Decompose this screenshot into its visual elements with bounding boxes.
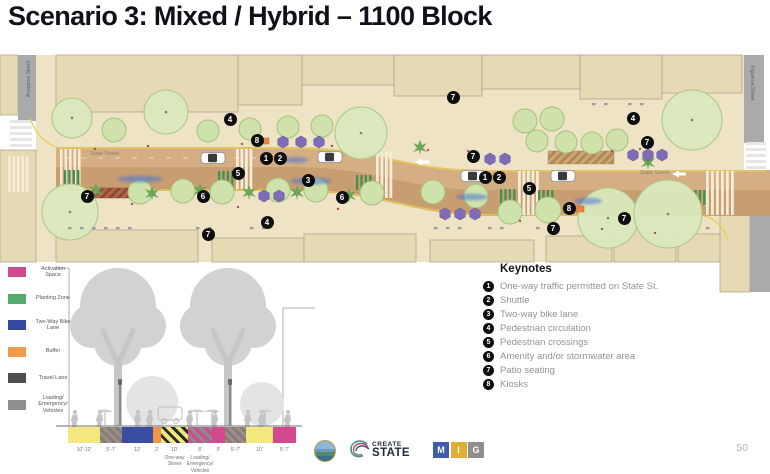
crosswalk-anapamu	[10, 120, 32, 147]
keynote-marker-2: 2	[493, 171, 506, 184]
keynote-label: Shuttle	[500, 295, 530, 306]
legend-item: Two-Way Bike Lane	[8, 312, 94, 339]
keynote-item-6: 6Amenity and/or stormwater area	[483, 349, 767, 363]
keynote-number: 2	[483, 295, 494, 306]
keynote-label: Two-way bike lane	[500, 309, 578, 320]
segment-dimension: 8'	[188, 447, 212, 453]
section-segment-0: 10'-12'	[68, 427, 100, 474]
shuttle-blur	[574, 198, 602, 205]
car-icon	[551, 171, 575, 182]
site-plan-illustration	[0, 0, 770, 474]
legend-item: Planting Zone	[8, 286, 94, 313]
segment-swatch	[273, 427, 296, 443]
section-segment-5: 8'Loading/ Emergency/ Vehicles	[188, 427, 212, 474]
keynote-number: 8	[483, 379, 494, 390]
legend-label: Buffer	[33, 348, 73, 355]
keynote-marker-4: 4	[627, 112, 640, 125]
section-segment-9: 5'-7'	[273, 427, 296, 474]
segment-sublabel: Loading/ Emergency/ Vehicles	[185, 455, 215, 474]
segment-swatch	[100, 427, 122, 443]
keynote-label: Pedestrian crossings	[500, 337, 588, 348]
cross-section-drawing	[55, 268, 315, 431]
slide: Scenario 3: Mixed / Hybrid – 1100 Block	[0, 0, 770, 474]
keynote-marker-4: 4	[261, 216, 274, 229]
segment-dimension: 10'	[246, 447, 273, 453]
loading-zone-hatch	[548, 151, 614, 164]
keynote-marker-7: 7	[202, 228, 215, 241]
legend-swatch	[8, 267, 26, 277]
segment-swatch	[122, 427, 153, 443]
keynote-marker-4: 4	[224, 113, 237, 126]
keynote-number: 1	[483, 281, 494, 292]
legend-label: Planting Zone	[33, 295, 73, 302]
crosswalk-figueroa	[746, 142, 766, 169]
segment-dimension: 5'-7'	[100, 447, 122, 453]
segment-swatch	[188, 427, 212, 443]
keynote-marker-3: 3	[302, 174, 315, 187]
mig-letter-G: G	[468, 442, 484, 458]
keynote-marker-7: 7	[618, 212, 631, 225]
create-state-s-icon	[348, 439, 370, 461]
segment-swatch	[161, 427, 188, 443]
shuttle-blur	[284, 157, 308, 163]
legend-swatch	[8, 294, 26, 304]
legend-label: Loading/ Emergency/ Vehicles	[33, 395, 73, 415]
keynote-marker-5: 5	[232, 167, 245, 180]
keynote-number: 6	[483, 351, 494, 362]
city-seal-logo	[314, 440, 336, 462]
legend-swatch	[8, 347, 26, 357]
keynote-marker-7: 7	[81, 190, 94, 203]
keynote-label: Pedestrian circulation	[500, 323, 591, 334]
segment-swatch	[225, 427, 246, 443]
keynote-label: Patio seating	[500, 365, 555, 376]
legend-label: Travel Lane	[33, 375, 73, 382]
segment-dimension: 5'	[212, 447, 225, 453]
segment-swatch	[212, 427, 225, 443]
keynote-marker-6: 6	[197, 190, 210, 203]
keynote-marker-8: 8	[563, 202, 576, 215]
section-segment-8: 10'	[246, 427, 273, 474]
segment-swatch	[68, 427, 100, 443]
section-segment-2: 12'	[122, 427, 153, 474]
keynote-item-2: 2Shuttle	[483, 293, 767, 307]
create-state-logo: CREATE STATE	[348, 439, 410, 461]
keynote-marker-2: 2	[274, 152, 287, 165]
legend-swatch	[8, 320, 26, 330]
keynote-marker-6: 6	[336, 191, 349, 204]
keynote-item-7: 7Patio seating	[483, 363, 767, 377]
segment-dimension: 5'-7'	[273, 447, 296, 453]
legend: Activation SpacePlanting ZoneTwo-Way Bik…	[8, 259, 94, 418]
keynote-item-4: 4Pedestrian circulation	[483, 321, 767, 335]
keynote-label: Amenity and/or stormwater area	[500, 351, 635, 362]
keynote-label: One-way traffic permitted on State St.	[500, 281, 658, 292]
keynote-marker-5: 5	[523, 182, 536, 195]
state-street-label-right: State Street	[640, 170, 669, 176]
section-segment-7: 5'-7'	[225, 427, 246, 474]
keynote-marker-1: 1	[479, 171, 492, 184]
keynote-number: 3	[483, 309, 494, 320]
section-dimension-bar: 10'-12'5'-7'12'2'10'One-way Street8'Load…	[68, 427, 296, 474]
keynote-label: Kiosks	[500, 379, 528, 390]
legend-swatch	[8, 400, 26, 410]
car-icon	[201, 153, 225, 164]
keynote-marker-8: 8	[251, 134, 264, 147]
segment-dimension: 5'-7'	[225, 447, 246, 453]
keynotes-panel: Keynotes 1One-way traffic permitted on S…	[483, 263, 767, 391]
segment-dimension: 10'-12'	[68, 447, 100, 453]
figueroa-street-label: Figueroa Street	[749, 57, 755, 109]
legend-swatch	[8, 373, 26, 383]
section-extent-line-right	[283, 308, 315, 426]
keynote-marker-7: 7	[547, 222, 560, 235]
legend-item: Buffer	[8, 339, 94, 366]
keynote-item-5: 5Pedestrian crossings	[483, 335, 767, 349]
legend-item: Loading/ Emergency/ Vehicles	[8, 392, 94, 419]
segment-dimension: 2'	[153, 447, 161, 453]
keynote-number: 4	[483, 323, 494, 334]
mig-letter-I: I	[451, 442, 467, 458]
legend-item: Travel Lane	[8, 365, 94, 392]
car-icon	[318, 152, 342, 163]
section-segment-4: 10'One-way Street	[161, 427, 188, 474]
shuttle-blur	[456, 194, 488, 201]
mig-logo: MIG	[433, 442, 484, 458]
keynote-marker-7: 7	[447, 91, 460, 104]
segment-dimension: 10'	[161, 447, 188, 453]
segment-dimension: 12'	[122, 447, 153, 453]
legend-item: Activation Space	[8, 259, 94, 286]
keynote-number: 5	[483, 337, 494, 348]
segment-swatch	[153, 427, 161, 443]
keynote-item-1: 1One-way traffic permitted on State St.	[483, 279, 767, 293]
section-segment-6: 5'	[212, 427, 225, 474]
legend-label: Two-Way Bike Lane	[33, 319, 73, 332]
keynote-marker-1: 1	[260, 152, 273, 165]
create-state-text-bottom: STATE	[372, 448, 410, 459]
page-number: 50	[736, 442, 748, 454]
segment-swatch	[246, 427, 273, 443]
keynote-marker-7: 7	[641, 136, 654, 149]
section-segment-1: 5'-7'	[100, 427, 122, 474]
keynote-item-3: 3Two-way bike lane	[483, 307, 767, 321]
state-street-label-left: State Street	[90, 151, 119, 157]
shuttle-blur	[117, 175, 163, 182]
keynote-marker-7: 7	[467, 150, 480, 163]
mig-letter-M: M	[433, 442, 449, 458]
keynote-number: 7	[483, 365, 494, 376]
anapamu-street-label: Anapamu Street	[26, 56, 32, 102]
keynotes-heading: Keynotes	[500, 263, 767, 275]
legend-label: Activation Space	[33, 266, 73, 279]
keynote-item-8: 8Kiosks	[483, 377, 767, 391]
